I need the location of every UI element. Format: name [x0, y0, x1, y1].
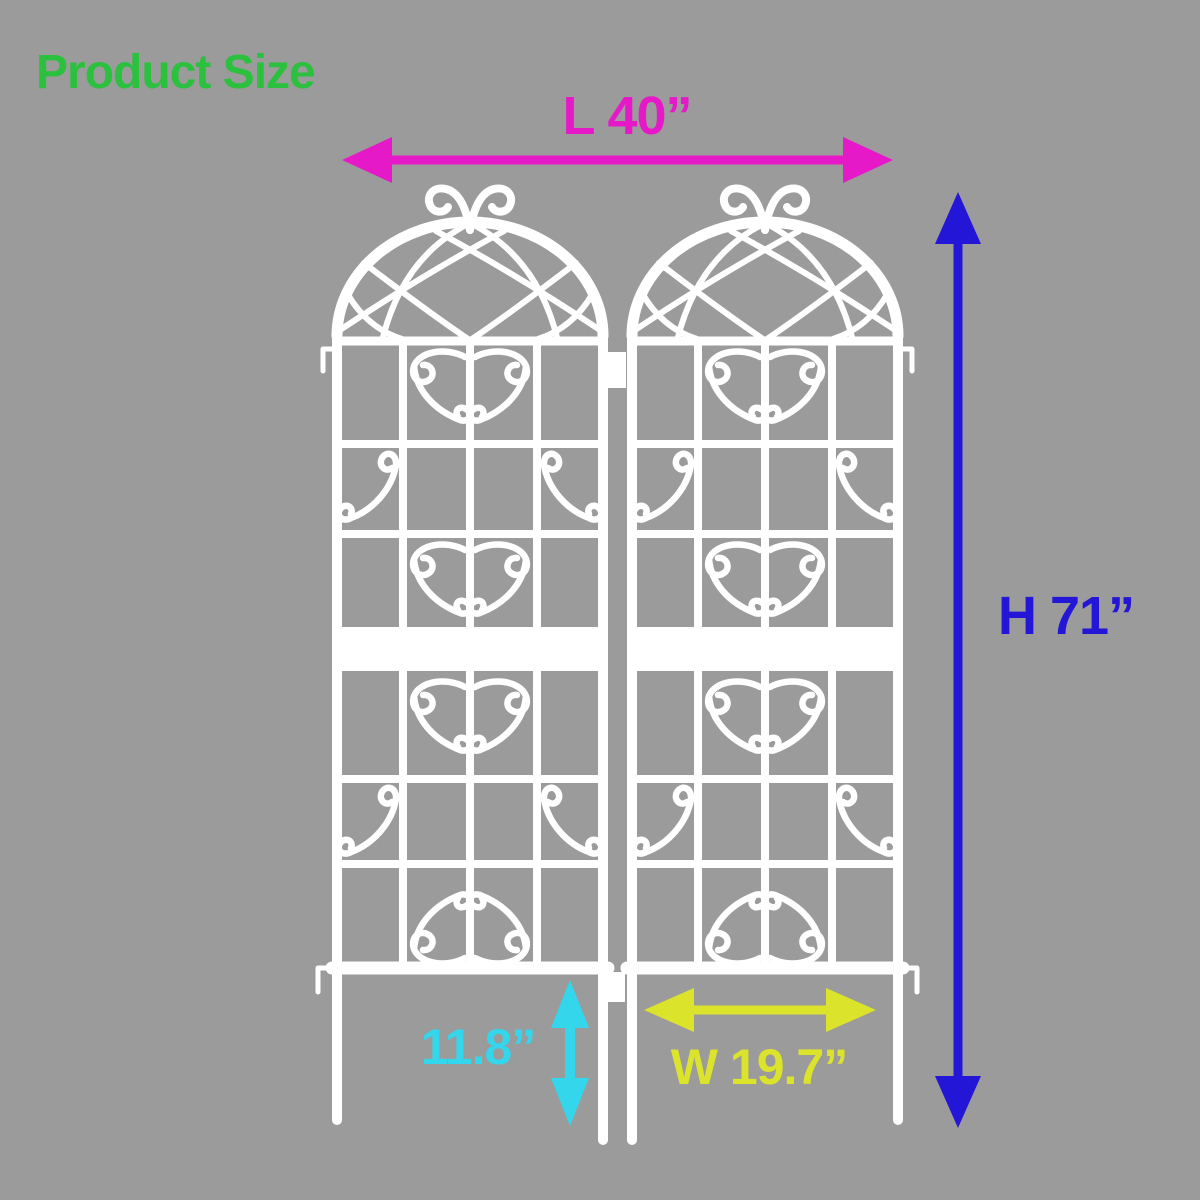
- stake-label: 11.8”: [421, 1019, 536, 1075]
- page-title: Product Size: [36, 46, 315, 99]
- product-size-diagram: Product Size L 40” H 71” 11.8” W 19.7”: [0, 0, 1200, 1200]
- width-label: W 19.7”: [671, 1039, 847, 1095]
- length-label: L 40”: [562, 86, 691, 146]
- height-label: H 71”: [998, 586, 1134, 646]
- panel-connector-top: [606, 352, 626, 388]
- panel-connector-bottom: [607, 972, 625, 1002]
- product-size-image: Product Size L 40” H 71” 11.8” W 19.7”: [0, 0, 1200, 1200]
